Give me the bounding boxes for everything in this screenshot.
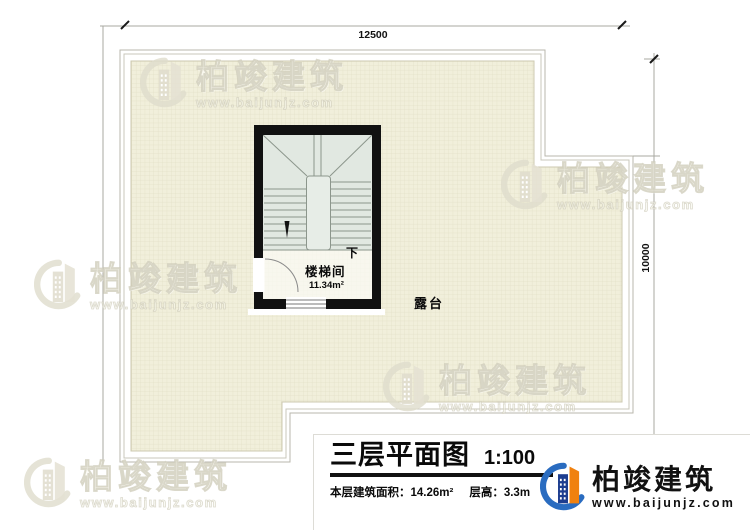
- stairwell: [248, 125, 385, 315]
- stair-well: [307, 176, 331, 250]
- brand-name: 柏竣建筑: [592, 466, 735, 494]
- scale-label: 1:100: [484, 447, 535, 470]
- page-title: 三层平面图: [330, 441, 470, 471]
- window: [286, 297, 326, 309]
- door-opening: [253, 258, 265, 292]
- title-block: 三层平面图 1:100 本层建筑面积：14.26m² 层高：3.3m: [330, 441, 554, 500]
- brand-url: www.baijunjz.com: [592, 497, 735, 510]
- floor-area-info: 本层建筑面积：14.26m²: [330, 484, 453, 500]
- title-underline: [330, 473, 553, 477]
- brand-logo-icon: [540, 461, 586, 515]
- dimension-width-label: 12500: [358, 29, 387, 41]
- stairwell-threshold: [248, 309, 385, 315]
- floor-height-info: 层高：3.3m: [469, 484, 530, 500]
- brand-block: 柏竣建筑 www.baijunjz.com: [540, 461, 735, 515]
- dimension-height-label: 10000: [640, 243, 652, 272]
- floor-plan-page: 12500 10000: [0, 0, 750, 530]
